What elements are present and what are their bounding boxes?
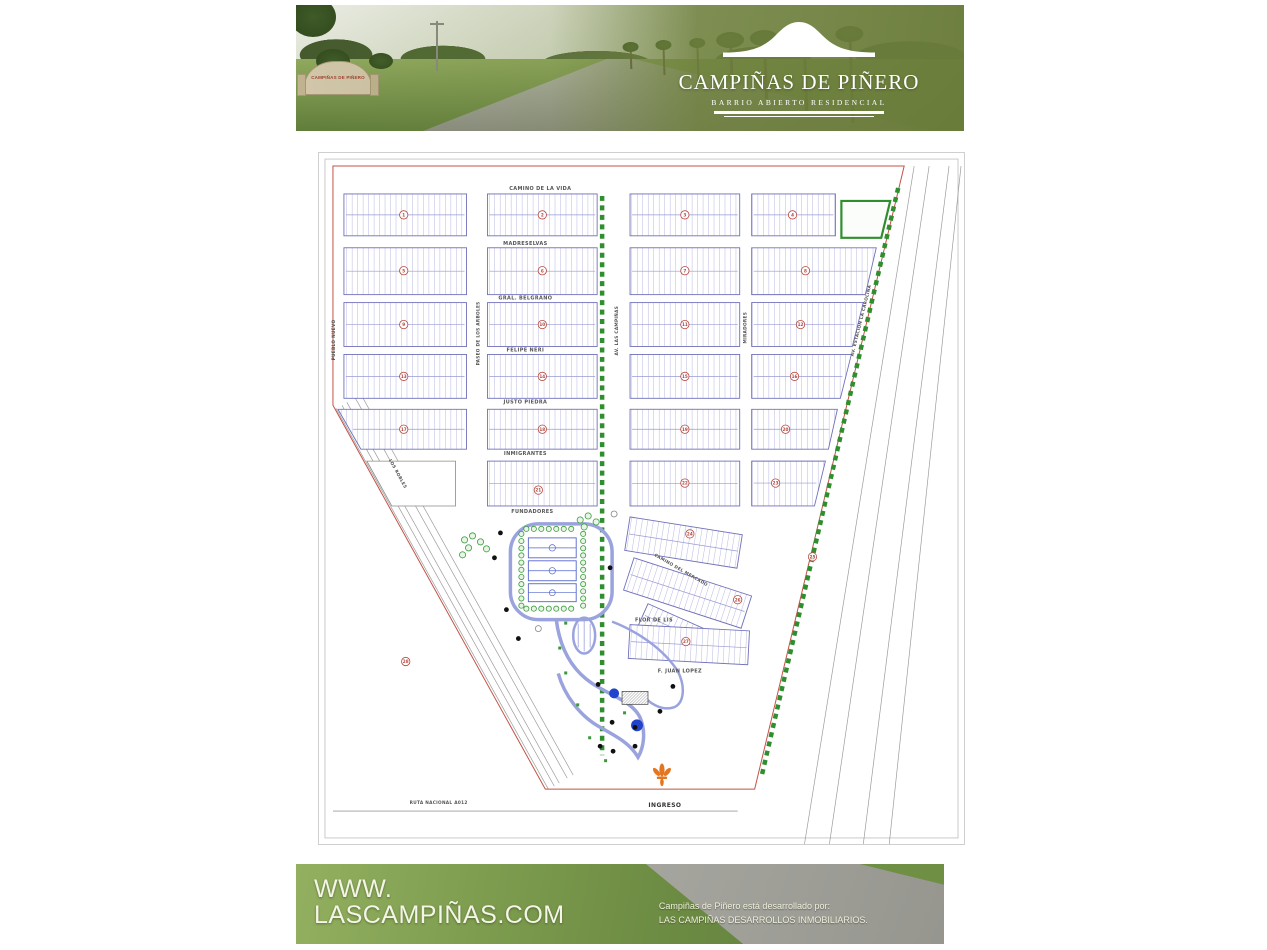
block-number: 17 <box>401 427 407 432</box>
tree-dot <box>546 606 551 611</box>
block-number: 14 <box>539 374 545 379</box>
block-number: 9 <box>402 322 405 327</box>
dark-tree-dot <box>611 749 616 754</box>
tree-dot <box>554 606 559 611</box>
developer-line1: Campiñas de Piñero está desarrollado por… <box>659 900 868 914</box>
tree-dot <box>581 574 586 579</box>
tree-dot <box>519 574 524 579</box>
street-label-f-juan-lopez: F. JUAN LOPEZ <box>658 668 702 674</box>
street-label-miradores: MIRADORES <box>743 312 749 344</box>
street-label-pueblo-nuevo: PUEBLO NUEVO <box>331 320 337 361</box>
tree-dot <box>554 526 559 531</box>
street-label-paseo-de-los-arboles: PASEO DE LOS ARBOLES <box>476 301 482 365</box>
tree-dot <box>539 526 544 531</box>
brand-logo: CAMPIÑAS DE PIÑERO BARRIO ABIERTO RESIDE… <box>644 13 954 117</box>
block-number: 7 <box>683 268 686 273</box>
developer-credit: Campiñas de Piñero está desarrollado por… <box>659 900 868 927</box>
logo-underline <box>714 111 884 114</box>
tree-dot <box>581 546 586 551</box>
block-number: 12 <box>798 322 804 327</box>
tree-cluster-dot <box>585 513 591 519</box>
website-line2: LASCAMPIÑAS.COM <box>314 902 565 928</box>
tree-dot <box>581 589 586 594</box>
street-label-flor-de-lis: FLOR DE LIS <box>635 618 673 624</box>
tree-dot <box>581 596 586 601</box>
block-number: 27 <box>683 639 689 644</box>
tree-cluster-dot <box>477 539 483 545</box>
bottom-banner-photo: WWW. LASCAMPIÑAS.COM Campiñas de Piñero … <box>296 864 944 944</box>
block-number: 1 <box>402 212 405 217</box>
street-label-madreselvas: MADRESELVAS <box>503 241 547 247</box>
tree-dot <box>561 526 566 531</box>
tree-dot <box>569 606 574 611</box>
logo-underline-thin <box>724 116 874 117</box>
block-number: 10 <box>539 322 545 327</box>
tree-cluster-dot <box>469 533 475 539</box>
brand-title: CAMPIÑAS DE PIÑERO <box>644 70 954 95</box>
tree-cluster-dot <box>593 519 599 525</box>
tree-dot <box>581 582 586 587</box>
street-label-camino-de-la-vida: CAMINO DE LA VIDA <box>509 186 571 192</box>
tree-dot <box>581 531 586 536</box>
tree-dot <box>519 538 524 543</box>
tree-cluster-dot <box>461 537 467 543</box>
dark-tree-dot <box>498 531 503 536</box>
tree-dot <box>519 553 524 558</box>
masterplan-sheet: CAMINO DE LA VIDA MADRESELVAS GRAL. BELG… <box>318 152 965 845</box>
park-marker <box>535 626 541 632</box>
website-line1: WWW. <box>314 876 565 902</box>
tree-dot <box>519 531 524 536</box>
brochure-page: CAMPIÑAS DE PIÑERO CAMPIÑAS DE PIÑERO BA… <box>0 0 1267 950</box>
block-number: 22 <box>682 481 688 486</box>
tree-dot <box>519 582 524 587</box>
housing-block-group <box>487 461 597 506</box>
street-label-av-las-campinas: AV. LAS CAMPIÑAS <box>613 306 620 356</box>
shrub-square <box>558 647 561 650</box>
block-number: 20 <box>783 427 789 432</box>
tree-dot <box>519 567 524 572</box>
shrub-square <box>564 671 567 674</box>
dark-tree-dot <box>492 555 497 560</box>
block-number: 5 <box>402 268 405 273</box>
tree-dot <box>546 526 551 531</box>
tree-dot <box>519 546 524 551</box>
shrub-square <box>576 703 579 706</box>
block-number: 25 <box>810 554 816 559</box>
street-label-justo-piedra: JUSTO PIEDRA <box>503 399 548 405</box>
housing-block <box>752 461 826 506</box>
sports-court <box>528 584 576 602</box>
block-number: 6 <box>541 268 544 273</box>
dark-tree-dot <box>608 565 613 570</box>
roundabout <box>611 511 617 517</box>
block-number: 16 <box>792 374 798 379</box>
pond <box>631 719 643 731</box>
block-number: 3 <box>683 212 686 217</box>
block-number: 24 <box>687 531 693 536</box>
street-label-gral-belgrano: GRAL. BELGRANO <box>498 296 552 302</box>
shrub-square <box>623 711 626 714</box>
tree-dot <box>581 603 586 608</box>
top-banner-photo: CAMPIÑAS DE PIÑERO CAMPIÑAS DE PIÑERO BA… <box>296 5 964 131</box>
street-label-felipe-neri: FELIPE NERI <box>507 347 545 353</box>
block-number: 8 <box>804 268 807 273</box>
dark-tree-dot <box>516 636 521 641</box>
entrance-label: INGRESO <box>648 802 681 809</box>
block-number: 15 <box>682 374 688 379</box>
tree-cluster-dot <box>483 546 489 552</box>
block-number: 26 <box>735 597 741 602</box>
tree-dot <box>531 606 536 611</box>
street-label-inmigrantes: INMIGRANTES <box>504 451 547 457</box>
shrub-square <box>564 622 567 625</box>
dark-tree-dot <box>671 684 676 689</box>
block-number: 19 <box>682 427 688 432</box>
dark-tree-dot <box>598 744 603 749</box>
reserve-parcel <box>367 461 456 506</box>
tree-dot <box>581 553 586 558</box>
street-label-fundadores: FUNDADORES <box>511 509 553 515</box>
block-number: 23 <box>773 481 779 486</box>
green-special-lot <box>841 201 890 238</box>
tree-dot <box>581 567 586 572</box>
shrub-square <box>604 759 607 762</box>
tree-dot <box>539 606 544 611</box>
tree-cluster-dot <box>465 545 471 551</box>
masterplan-drawing: CAMINO DE LA VIDA MADRESELVAS GRAL. BELG… <box>319 153 964 844</box>
tree-dot <box>519 589 524 594</box>
block-number: 2 <box>541 212 544 217</box>
gate-arch-logo-icon <box>719 13 879 63</box>
tree-dot <box>569 526 574 531</box>
tree-cluster-dot <box>577 517 583 523</box>
tree-dot <box>581 538 586 543</box>
entrance-marker: INGRESO <box>648 763 681 809</box>
block-number: 28 <box>403 659 409 664</box>
tree-dot <box>519 560 524 565</box>
dark-tree-dot <box>504 607 509 612</box>
block-number: 21 <box>535 488 541 493</box>
entrance-fleur-icon <box>652 763 673 786</box>
dark-tree-dot <box>633 744 638 749</box>
brand-subtitle: BARRIO ABIERTO RESIDENCIAL <box>644 98 954 107</box>
block-number: 13 <box>401 374 407 379</box>
housing-blocks <box>338 194 876 665</box>
route-label: RUTA NACIONAL A012 <box>410 800 468 806</box>
tree-dot <box>519 596 524 601</box>
tree-dot <box>524 606 529 611</box>
block-number: 11 <box>682 322 688 327</box>
block-number: 18 <box>539 427 545 432</box>
tree-dot <box>561 606 566 611</box>
tree-dot <box>581 560 586 565</box>
clubhouse-footprint <box>622 691 648 704</box>
dark-tree-dot <box>596 682 601 687</box>
dark-tree-dot <box>633 725 638 730</box>
tree-dot <box>524 526 529 531</box>
tree-dot <box>531 526 536 531</box>
website-url: WWW. LASCAMPIÑAS.COM <box>314 876 565 928</box>
sports-court <box>528 561 576 581</box>
pond <box>609 688 619 698</box>
sports-court <box>528 538 576 558</box>
dark-tree-dot <box>658 709 663 714</box>
developer-line2: LAS CAMPIÑAS DESARROLLOS INMOBILIARIOS. <box>659 914 868 928</box>
shrub-square <box>588 736 591 739</box>
tree-dot <box>519 603 524 608</box>
dark-tree-dot <box>610 720 615 725</box>
tree-cluster-dot <box>581 524 587 530</box>
block-number: 4 <box>791 212 794 217</box>
tree-cluster-dot <box>459 552 465 558</box>
